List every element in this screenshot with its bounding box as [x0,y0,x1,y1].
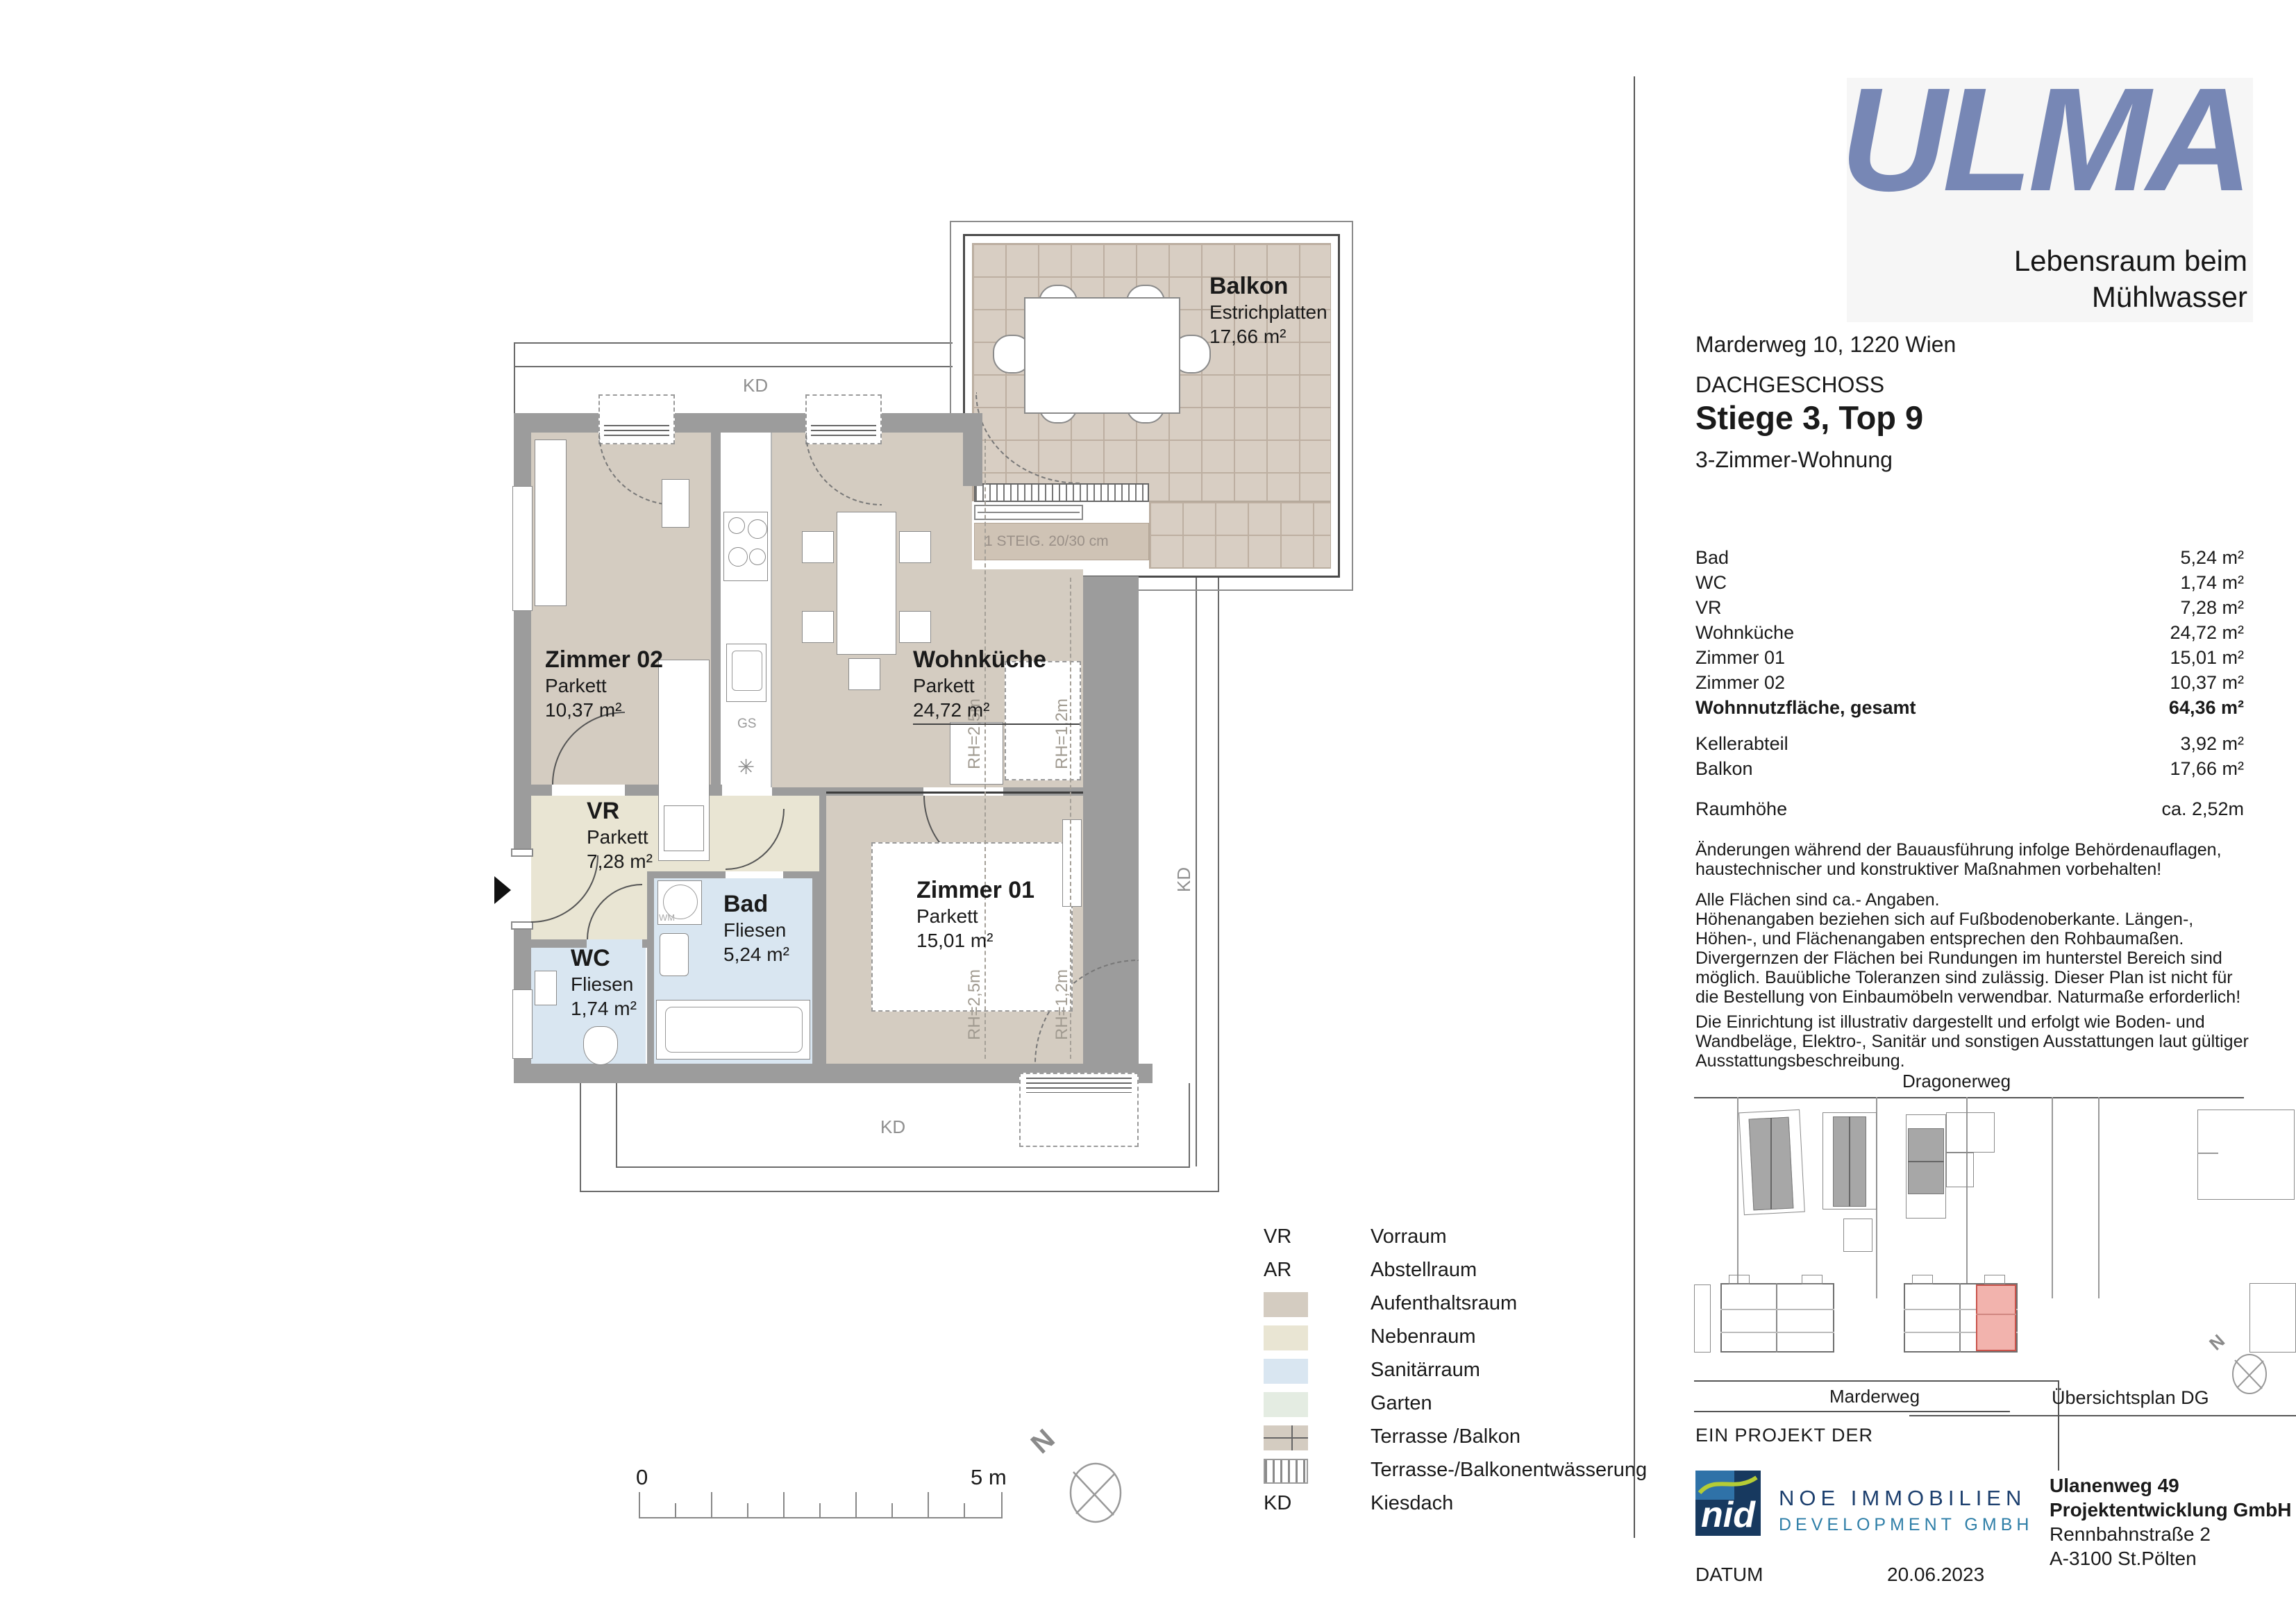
shape: Kellerabteil [1695,733,1788,755]
site-building [1720,1283,1834,1353]
shape [1700,1477,1757,1493]
entry-door-jamb [511,921,533,930]
roof-line [580,1191,1219,1192]
shape: Parkett [545,674,663,698]
legend-swatch-aufenthaltsraum [1264,1292,1308,1317]
washing-machine-label: WM [659,912,675,923]
shape [1843,1219,1872,1252]
line [2098,1097,2100,1298]
company-address: Ulanenweg 49 Projektentwicklung GmbH Ren… [2050,1473,2292,1571]
roof-line [616,1083,617,1168]
line [1908,1161,1944,1162]
nid-logo: nid [1695,1471,1761,1536]
bed-pillow [664,805,704,851]
window [512,486,533,611]
street-label-marderweg: Marderweg [1829,1386,1920,1407]
legend-label: Sanitärraum [1371,1359,1480,1382]
line [1959,1283,1961,1353]
shape: VR [1695,597,1722,619]
compass-icon [1048,1441,1139,1539]
balcony-table [1024,297,1180,414]
compass-icon [2220,1341,2279,1407]
legend-label: Terrasse-/Balkonentwässerung [1371,1459,1647,1482]
datum-label: DATUM [1695,1564,1763,1586]
shape: Fliesen [571,973,637,996]
dishwasher-label: GS [737,717,756,732]
shape: Bad [1695,547,1729,569]
shape: Fliesen [723,919,789,942]
roof-line [514,366,953,367]
stove-burner [728,547,748,567]
disclaimer-3: Die Einrichtung ist illustrativ dargeste… [1695,1012,2251,1071]
stove-burner [728,517,745,534]
shape: Raumhöhe [1695,798,1787,820]
shape [1984,1275,2005,1284]
street-label-dragonerweg: Dragonerweg [1902,1071,2011,1092]
table-row: VR7,28 m² [1695,597,2244,619]
shape: Wohnnutzfläche, gesamt [1695,697,1916,719]
table-row: Bad5,24 m² [1695,547,2244,569]
shape [1073,1472,1114,1515]
shape: Zimmer 01 [916,876,1034,905]
stove-burner [749,549,766,565]
wall [963,413,982,486]
bathroom-sink [660,933,689,976]
wall-edge [826,792,1083,794]
wall [514,785,552,796]
roof-line [1196,578,1197,1166]
legend-key: VR [1264,1225,1326,1248]
dining-chair [899,611,931,643]
line [1720,1309,1834,1310]
shape [1802,1275,1822,1284]
wc-sink [535,971,557,1005]
balcony-drain-strip [974,483,1149,502]
floorplan: KD KD KD 1 STEIG. 20/30 cm Balkon [0,0,1634,1624]
table-row: Zimmer 0115,01 m² [1695,647,2244,669]
room-label-wohnkueche: Wohnküche Parkett 24,72 m² [913,646,1080,725]
shape: 15,01 m² [2170,647,2244,669]
shape: WC [571,944,637,973]
legend-swatch-nebenraum [1264,1325,1308,1350]
scale-baseline [639,1517,1003,1518]
legend-swatch-terrasse [1264,1425,1308,1450]
legend-swatch-sanitaerraum [1264,1359,1308,1384]
table-row-roomheight: Raumhöheca. 2,52m [1695,798,2244,821]
kd-roof-label-bottom: KD [880,1116,905,1138]
shape [2235,1360,2262,1389]
roof-line [616,1166,1190,1168]
room-label-vr: VR Parkett 7,28 m² [587,797,653,873]
shape: 3,92 m² [2180,733,2244,755]
shape: 5,24 m² [2180,547,2244,569]
dining-chair [802,531,834,563]
legend-label: Abstellraum [1371,1259,1477,1282]
legend-label: Aufenthaltsraum [1371,1292,1517,1315]
shape [1946,1153,1974,1187]
kitchen-strip [721,433,772,787]
compass: N [1021,1416,1132,1541]
line [1849,1116,1850,1207]
project-label: EIN PROJEKT DER [1695,1425,1873,1446]
toilet [583,1026,618,1065]
dining-table [837,512,896,655]
kd-roof-label-top: KD [743,375,768,396]
kitchen-sink-basin [732,651,762,691]
legend-label: Nebenraum [1371,1325,1476,1348]
scale-tick [928,1492,929,1517]
shape [1912,1275,1933,1284]
shape: Zimmer 02 [1695,672,1785,694]
dining-chair [848,658,880,690]
highlighted-unit [1976,1284,2016,1351]
scale-tick [675,1503,676,1517]
datum-value: 20.06.2023 [1887,1564,1984,1586]
line [1737,1097,1738,1298]
company-line: A-3100 St.Pölten [2050,1546,2292,1571]
shape: Balkon [1695,758,1753,780]
shape [2197,1110,2295,1200]
shape [1694,1284,1711,1353]
shape: Parkett [913,674,1080,698]
scale-tick [819,1503,821,1517]
shape: 17,66 m² [2170,758,2244,780]
table-row: Kellerabteil3,92 m² [1695,733,2244,755]
rh-line [984,439,986,1059]
wall [772,787,826,796]
legend-label: Terrasse /Balkon [1371,1425,1520,1448]
dining-chair [802,611,834,643]
room-label-zimmer02: Zimmer 02 Parkett 10,37 m² [545,646,663,722]
line [1770,1118,1772,1209]
shape: Parkett [916,905,1034,928]
bathtub-inner [665,1007,803,1053]
shape [2237,1361,2263,1388]
shape: 7,28 m² [2180,597,2244,619]
shape: Balkon [1209,272,1327,301]
room-label-zimmer01: Zimmer 01 Parkett 15,01 m² [916,876,1034,953]
room-label-wc: WC Fliesen 1,74 m² [571,944,637,1021]
ulma-tagline-1: Lebensraum beim [2014,244,2247,278]
wall [647,871,726,878]
legend-swatch-garten [1264,1392,1308,1417]
legend-label: Vorraum [1371,1225,1447,1248]
scale-tick [783,1492,785,1517]
line [1720,1332,1834,1333]
shape: WC [1695,572,1727,594]
shape: 24,72 m² [2170,622,2244,644]
company-line: Projektentwicklung GmbH [2050,1498,2292,1522]
table-row-total: Wohnnutzfläche, gesamt64,36 m² [1695,697,2244,719]
unit-title: Stiege 3, Top 9 [1695,399,1923,437]
noe-development-label: DEVELOPMENT GMBH [1779,1515,2033,1535]
wall [642,939,649,948]
legend-label: Kiesdach [1371,1492,1453,1515]
dining-chair [899,531,931,563]
floorplan-sheet: KD KD KD 1 STEIG. 20/30 cm Balkon [0,0,2296,1624]
scale-tick [964,1503,965,1517]
roof-window-bars [1026,1078,1132,1093]
shape: 24,72 m² [913,698,1080,725]
balcony-door-line [978,512,1080,513]
site-plan-caption: Übersichtsplan DG [2052,1387,2209,1409]
entry-door-jamb [511,848,533,857]
shape: Zimmer 02 [545,646,663,674]
line [1909,1415,2296,1416]
shape: Wohnküche [913,646,1080,674]
shape: Parkett [587,826,653,849]
scale-tick [639,1492,640,1517]
shape: Estrichplatten [1209,301,1327,324]
wardrobe [535,440,567,606]
legend-key: AR [1264,1259,1326,1282]
site-plan: Dragonerweg [1694,1069,2296,1416]
address: Marderweg 10, 1220 Wien [1695,332,1956,358]
shape: 10,37 m² [2170,672,2244,694]
ulma-logo: ULMA Lebensraum beim Mühlwasser [1847,78,2253,322]
fridge-icon: ✳ [737,755,755,780]
scale-end-label: 5 m [971,1465,1007,1490]
shape: 1,74 m² [571,997,637,1021]
roof-line [514,342,515,415]
table-row: WC1,74 m² [1695,572,2244,594]
stove-burner [748,519,767,539]
room-label-bad: Bad Fliesen 5,24 m² [723,890,789,966]
entry-marker-icon [494,876,511,904]
shape: Wohnküche [1695,622,1794,644]
line [1694,1411,2010,1412]
shape: VR [587,797,653,826]
balcony-floor [1149,501,1331,569]
shape: 1,74 m² [2180,572,2244,594]
line [1976,1314,2016,1315]
wardrobe [1062,819,1082,907]
panel-divider [1634,76,1635,1538]
rh-label: RH=2,5m [965,969,984,1040]
noe-immobilien-label: NOE IMMOBILIEN [1779,1486,2026,1511]
disclaimer-1: Änderungen während der Bauausführung inf… [1695,840,2251,879]
line [1694,1380,2059,1382]
disclaimer-2: Alle Flächen sind ca.- Angaben. Höhenang… [1695,890,2251,1007]
rh-label: RH=1,2m [1053,969,1072,1040]
shape: 15,01 m² [916,929,1034,953]
table-row: Zimmer 0210,37 m² [1695,672,2244,694]
wall [514,413,982,433]
company-line: Rennbahnstraße 2 [2050,1522,2292,1546]
shape [1076,1473,1115,1514]
table-row: Balkon17,66 m² [1695,758,2244,780]
window [512,989,533,1059]
line [1694,1097,2244,1098]
balcony-step-label: 1 STEIG. 20/30 cm [984,533,1109,550]
legend-label: Garten [1371,1392,1432,1415]
line [2052,1097,2053,1298]
shape: Bad [723,890,789,919]
legend-key: KD [1264,1492,1326,1515]
roof-line [580,1083,581,1192]
wall [711,433,721,787]
scale-tick [891,1503,893,1517]
nid-logo-text: nid [1701,1494,1755,1536]
shape: Zimmer 01 [1695,647,1785,669]
scale-tick [855,1492,857,1517]
floor-label: DACHGESCHOSS [1695,372,1884,398]
shape: 5,24 m² [723,943,789,966]
ulma-logo-text: ULMA [1841,58,2249,220]
wall [647,871,654,1064]
shape: 10,37 m² [545,698,663,722]
scale-tick [1001,1492,1003,1517]
roof-line [514,342,953,344]
roof-line [1189,1083,1190,1168]
table-row: Wohnküche24,72 m² [1695,622,2244,644]
line [1776,1283,1777,1353]
roof-line [1218,578,1219,1192]
shape [1946,1112,1995,1153]
wall [812,871,826,1064]
line [2197,1153,2218,1154]
shape: 64,36 m² [2169,697,2244,719]
company-line: Ulanenweg 49 [2050,1473,2292,1498]
kd-roof-label-right: KD [1173,867,1195,892]
shelf [662,479,689,528]
scale-start-label: 0 [636,1465,648,1490]
shape [1729,1275,1750,1284]
ulma-tagline-2: Mühlwasser [2092,281,2247,314]
shape: 7,28 m² [587,850,653,873]
legend-swatch-entwaesserung [1264,1459,1308,1484]
apartment-type: 3-Zimmer-Wohnung [1695,447,1893,473]
shape: 17,66 m² [1209,325,1327,349]
room-label-balkon: Balkon Estrichplatten 17,66 m² [1209,272,1327,349]
scale-tick [747,1503,748,1517]
scale-tick [711,1492,712,1517]
shape: ca. 2,52m [2161,798,2244,820]
